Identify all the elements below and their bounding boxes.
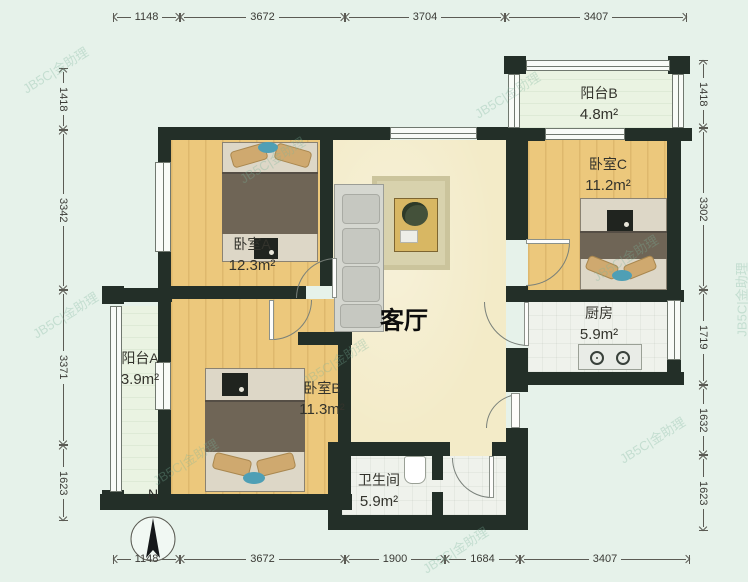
dimension-bottom: 3407 (520, 552, 690, 566)
bed-a-accent (258, 142, 278, 153)
wall-post (102, 286, 124, 304)
sofa-cushion (342, 266, 380, 302)
dimension-right: 1719 (696, 290, 710, 385)
kitchen-label: 厨房 5.9m² (580, 303, 618, 343)
bed-b-accent (243, 472, 265, 484)
table-tray (400, 230, 418, 243)
dimension-bottom: 3672 (180, 552, 345, 566)
wall (492, 442, 506, 456)
window-bedroom-a (155, 162, 171, 252)
watermark: JB5C|金助理 (419, 522, 492, 577)
wall (158, 290, 171, 362)
wall (158, 410, 171, 494)
dimension-top: 3407 (505, 10, 687, 24)
wall (667, 128, 681, 300)
wall (506, 290, 684, 302)
door-leaf-bedroom-c (526, 239, 570, 244)
bed-b-head-tv (222, 373, 248, 396)
wall (158, 286, 306, 299)
balcony-b-label: 阳台B 4.8m² (580, 83, 618, 123)
door-leaf-bedroom-a (332, 258, 337, 298)
balcony-a-floor (122, 306, 158, 494)
stove-burner (590, 351, 604, 365)
wall (158, 127, 171, 162)
wall (625, 128, 692, 141)
bed-c-head-tv (607, 210, 633, 231)
balcony-a-label: 阳台A 3.9m² (121, 348, 159, 388)
wall (158, 127, 390, 140)
wall (328, 515, 528, 530)
wall (432, 456, 443, 480)
dimension-top: 3672 (180, 10, 345, 24)
stove (578, 344, 642, 370)
wall-post (504, 56, 526, 74)
wall (432, 492, 443, 515)
bedroom-a-label: 卧室A 12.3m² (229, 234, 276, 274)
dimension-right: 1418 (696, 60, 710, 128)
dimension-left: 1418 (56, 68, 70, 130)
dimension-left: 1623 (56, 445, 70, 521)
living-room-name: 客厅 (380, 301, 428, 336)
sofa-chaise (340, 304, 382, 328)
sofa-cushion (342, 194, 380, 224)
window-balcony-b-right (672, 74, 684, 128)
dimension-right: 1632 (696, 385, 710, 455)
stove-burner (616, 351, 630, 365)
wall-post (102, 490, 124, 510)
door-leaf-entry (511, 393, 520, 428)
dimension-bottom: 1900 (345, 552, 445, 566)
dimension-bottom: 1684 (445, 552, 520, 566)
window-balcony-a (110, 306, 122, 492)
dimension-top: 3704 (345, 10, 505, 24)
wall (506, 128, 528, 240)
wall (298, 332, 352, 345)
dimension-right: 1623 (696, 455, 710, 531)
dimension-left: 3342 (56, 130, 70, 290)
watermark: JB5C|金助理 (732, 262, 748, 336)
dimension-bottom: 1148 (113, 552, 180, 566)
floorplan-canvas: 客厅 卧室A 12.3m² 卧室B 11.3m² 卧室C 11.2m² 阳台A … (0, 0, 748, 582)
wall (506, 372, 684, 385)
living-room-label: 客厅 (380, 301, 428, 336)
window-balcony-b-left (508, 74, 520, 128)
bathroom-label: 卫生间 5.9m² (358, 470, 400, 510)
bed-b-duvet (205, 400, 305, 452)
compass-north-label: N (140, 486, 166, 502)
bathroom-sink (404, 456, 426, 484)
bedroom-b-label: 卧室B 11.3m² (299, 378, 345, 418)
wall-post (668, 56, 690, 74)
window-balcony-b-bedroom-c (545, 128, 625, 140)
window-balcony-b-top (526, 60, 670, 71)
wall (667, 360, 681, 385)
bed-a-duvet (222, 172, 318, 234)
dimension-top: 1148 (113, 10, 180, 24)
bedroom-c-label: 卧室C 11.2m² (585, 154, 631, 194)
wall (340, 442, 450, 456)
door-leaf-bathroom (489, 456, 494, 498)
window-kitchen (667, 300, 681, 360)
wall (100, 494, 352, 510)
door-leaf-bedroom-b (269, 300, 274, 340)
bed-c-accent (612, 270, 632, 281)
window-living-room (390, 127, 477, 139)
sofa-cushion (342, 228, 380, 264)
dimension-left: 3371 (56, 290, 70, 445)
door-leaf-kitchen (524, 302, 529, 346)
wall (158, 252, 171, 290)
dimension-right: 3302 (696, 128, 710, 290)
watermark: JB5C|金助理 (616, 412, 689, 467)
plant (402, 202, 428, 226)
wall (506, 348, 528, 392)
